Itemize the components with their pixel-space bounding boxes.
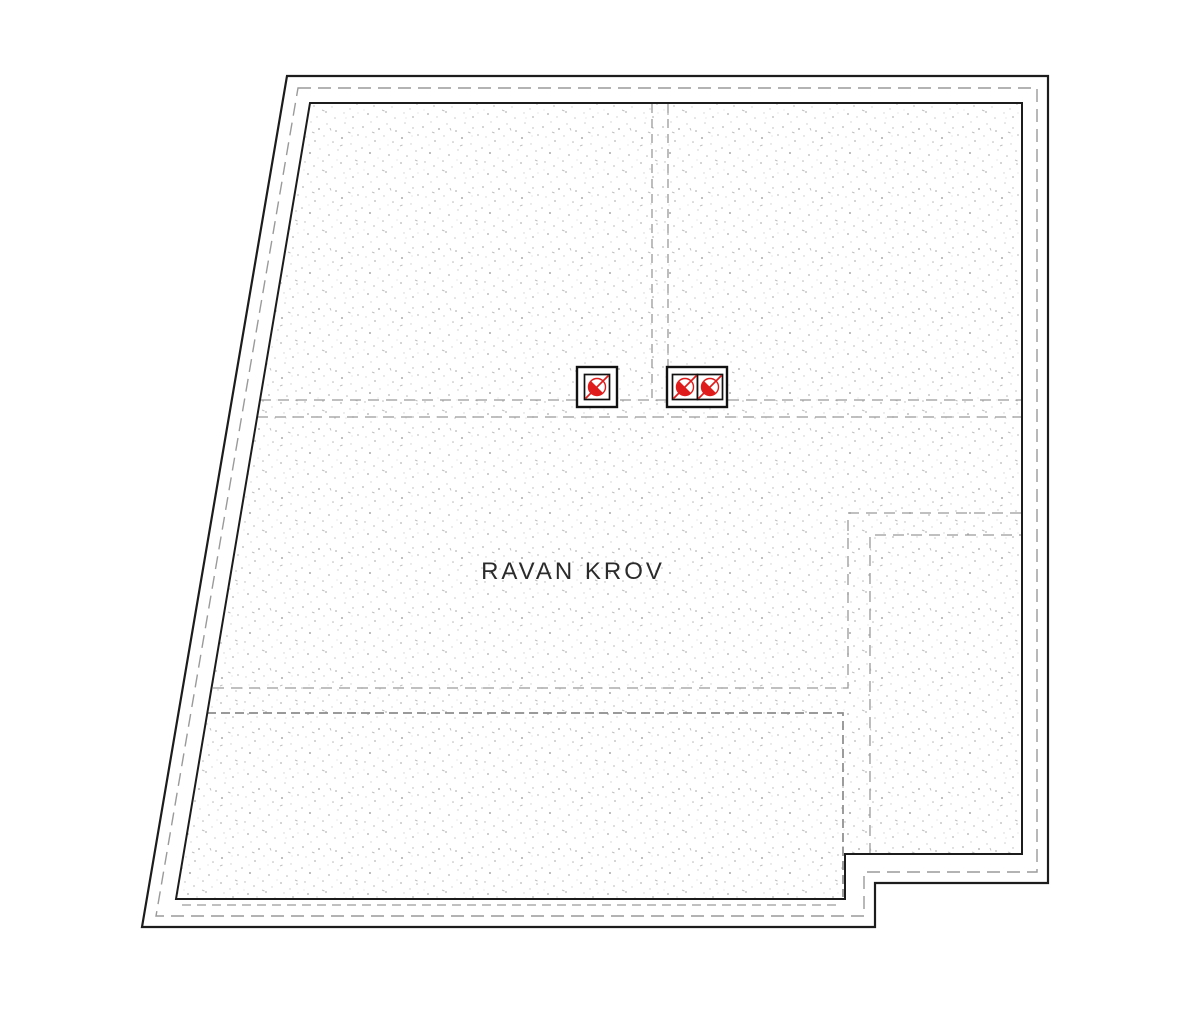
roof-surface-stipple <box>176 103 1022 899</box>
roof-label: RAVAN KROV <box>481 558 665 585</box>
vent-box-double <box>667 367 727 407</box>
vent-box-single <box>577 367 617 407</box>
roof-plan-drawing: RAVAN KROV <box>0 0 1200 1015</box>
roof-plan-page: RAVAN KROV <box>0 0 1200 1015</box>
roof-surface-group <box>176 103 1022 899</box>
